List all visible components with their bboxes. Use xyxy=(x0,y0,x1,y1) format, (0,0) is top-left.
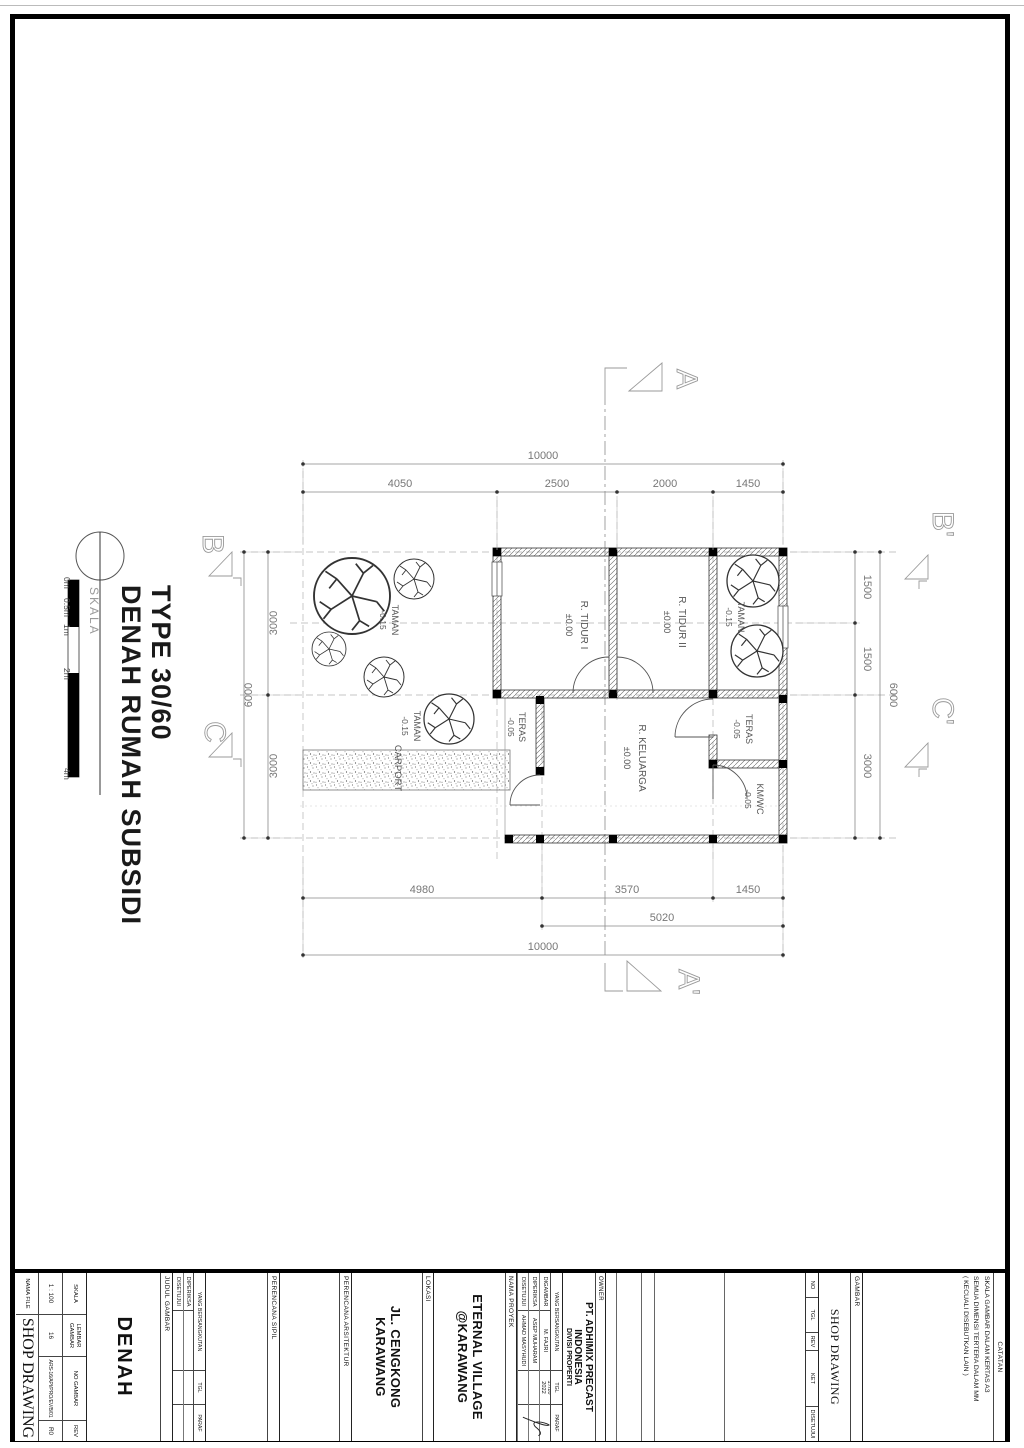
nama-proyek-cell: NAMA PROYEK ETERNAL VILLAGE @KARAWANG xyxy=(433,1273,516,1441)
meta-block: SKALA LEMBAR GAMBAR NO GAMBAR REV 1 : 10… xyxy=(15,1273,86,1441)
approval-name: ASEP MUHARAM xyxy=(529,1311,539,1371)
drawing-sheet: 10000 4050 2500 2000 1450 4980 3570 1450… xyxy=(0,0,1024,1448)
proyek-line1: ETERNAL VILLAGE xyxy=(470,1294,485,1420)
scale-tick-2: 2m xyxy=(62,668,72,680)
nama-proyek-label: NAMA PROYEK xyxy=(505,1273,516,1441)
approval2-role: DISETUJUI xyxy=(173,1273,183,1311)
approval-date: 17/10 2022 xyxy=(540,1371,550,1405)
section-letter-c: C xyxy=(198,721,231,743)
approval2-name xyxy=(184,1311,193,1371)
signature-scribble xyxy=(519,1409,552,1439)
dim-bottom-1: 4980 xyxy=(410,884,434,896)
dim-bottom-3: 1450 xyxy=(736,884,760,896)
scale-tick-0: 0m xyxy=(62,577,72,589)
approval-role: DIGAMBAR xyxy=(540,1273,550,1311)
scale-bar: 0m 0.5m 1m 2m 4m xyxy=(62,577,79,780)
lokasi-label: LOKASI xyxy=(422,1273,433,1441)
room-teras-kiri-level: -0.05 xyxy=(506,717,516,737)
dim-top-3: 2000 xyxy=(653,478,677,490)
meta-rev-value: R0 xyxy=(39,1421,62,1441)
perencana-sipil-label: PERENCANA SIPIL xyxy=(267,1273,279,1441)
dim-bottom-total: 10000 xyxy=(528,941,559,953)
rev-col-tgl: TGL xyxy=(806,1298,818,1333)
approval-name: M. FAJRI xyxy=(540,1311,550,1371)
perencana-arsitektur-cell: PERENCANA ARSITEKTUR xyxy=(279,1273,351,1441)
catatan-label: CATATAN xyxy=(993,1273,1005,1441)
approval2-block: YANG BERSANGKUTAN TGL PARAF DIPERIKSA DI… xyxy=(172,1273,205,1441)
revision-row-line xyxy=(654,1273,655,1441)
room-kmwc-level: -0.05 xyxy=(743,789,753,809)
approval2-row-disetujui: DISETUJUI xyxy=(173,1273,183,1441)
gambar-label: GAMBAR xyxy=(850,1273,862,1441)
judul-gambar-value: DENAH xyxy=(87,1273,160,1441)
drawing-title-line2: TYPE 30/60 xyxy=(146,585,176,741)
room-tidur2: R. TIDUR II xyxy=(676,596,687,647)
meta-header-row: SKALA LEMBAR GAMBAR NO GAMBAR REV xyxy=(62,1273,86,1441)
dim-left-1: 3000 xyxy=(268,611,280,635)
approval2-date xyxy=(184,1371,193,1405)
meta-namafile-row: NAMA FILE SHOP DRAWING xyxy=(16,1273,38,1441)
floor-plan-drawing: 10000 4050 2500 2000 1450 4980 3570 1450… xyxy=(0,0,1024,1269)
approval-role: DIPERIKSA xyxy=(529,1273,539,1311)
dim-top-1: 4050 xyxy=(388,478,412,490)
gambar-value: SHOP DRAWING xyxy=(819,1273,850,1441)
dimension-texts: 10000 4050 2500 2000 1450 4980 3570 1450… xyxy=(243,450,899,953)
rev-col-rev: REV xyxy=(806,1333,818,1351)
approval-block: YANG BERSANGKUTAN TGL PARAF DIGAMBAR M. … xyxy=(516,1273,562,1441)
approval2-paraf-header: PARAF xyxy=(194,1405,205,1441)
title-block-rotated: CATATAN SKALA GAMBAR DALAM KERTAS A3 SEM… xyxy=(15,1273,1005,1441)
perencana-sipil-cell: PERENCANA SIPIL xyxy=(205,1273,279,1441)
approval-paraf-header: PARAF xyxy=(551,1405,562,1441)
scale-tick-1: 1m xyxy=(62,624,72,636)
revision-header-row: NO TGL REV KET DISETUJUI xyxy=(805,1273,818,1441)
area-carport: CARPORT xyxy=(392,745,403,791)
area-taman-tengah-level: -0.15 xyxy=(400,716,410,736)
scale-tick-05: 0.5m xyxy=(62,598,72,617)
owner-cell: OWNER PT. ADHIMIX PRECAST INDONESIA DIVI… xyxy=(562,1273,605,1441)
catatan-note-2: SEMUA DIMENSI TERTERA DALAM MM xyxy=(970,1276,981,1438)
section-letter-b-prime: B' xyxy=(926,511,959,537)
area-taman-kanan: TAMAN xyxy=(736,602,746,633)
approval-date xyxy=(518,1371,528,1405)
rev-col-ket: KET xyxy=(806,1351,818,1407)
dim-bottom-2: 3570 xyxy=(615,884,639,896)
catatan-note-1: SKALA GAMBAR DALAM KERTAS A3 xyxy=(980,1276,991,1438)
dim-bottom-partial: 5020 xyxy=(650,912,674,924)
room-keluarga-level: ±0.00 xyxy=(622,747,632,769)
catatan-note-3: ( KECUALI DISEBUTKAN LAIN ) xyxy=(959,1276,970,1438)
dim-top-total: 10000 xyxy=(528,450,559,462)
lokasi-line1: JL. CENGKONG xyxy=(387,1306,402,1409)
section-letters: A A' B B' C C' xyxy=(196,369,959,995)
proyek-line2: @KARAWANG xyxy=(455,1311,470,1404)
approval-header: YANG BERSANGKUTAN xyxy=(551,1273,562,1371)
owner-line2: INDONESIA xyxy=(572,1329,583,1385)
grid-lines xyxy=(240,460,900,958)
dim-left-2: 3000 xyxy=(268,754,280,778)
section-markers xyxy=(209,363,928,991)
catatan-notes: SKALA GAMBAR DALAM KERTAS A3 SEMUA DIMEN… xyxy=(957,1273,993,1441)
area-taman-kiri: TAMAN xyxy=(390,605,400,636)
approval2-row-diperiksa: DIPERIKSA xyxy=(183,1273,193,1441)
meta-rev-header: REV xyxy=(63,1421,86,1441)
carport-paving xyxy=(303,750,510,790)
meta-skala-header: SKALA xyxy=(63,1273,86,1315)
meta-lembar-value: 16 xyxy=(39,1315,62,1357)
extension-lines xyxy=(240,468,884,958)
dim-right-3: 3000 xyxy=(861,754,873,778)
rev-col-no: NO xyxy=(806,1273,818,1298)
revision-body xyxy=(606,1273,805,1441)
approval-date xyxy=(529,1371,539,1405)
judul-gambar-cell: JUDUL GAMBAR DENAH xyxy=(86,1273,172,1441)
section-letter-c-prime: C' xyxy=(926,697,959,724)
revision-table: NO TGL REV KET DISETUJUI xyxy=(605,1273,818,1441)
nama-file-label: NAMA FILE xyxy=(16,1273,38,1315)
dim-top-2: 2500 xyxy=(545,478,569,490)
drawing-title: DENAH RUMAH SUBSIDI TYPE 30/60 SKALA xyxy=(76,532,176,925)
room-kmwc: KM/WC xyxy=(755,784,765,815)
gambar-cell: GAMBAR SHOP DRAWING xyxy=(818,1273,862,1441)
judul-gambar-label: JUDUL GAMBAR xyxy=(160,1273,172,1441)
section-letter-a-prime: A' xyxy=(672,969,705,995)
approval2-role: DIPERIKSA xyxy=(184,1273,193,1311)
lokasi-line2: KARAWANG xyxy=(372,1317,387,1397)
catatan-cell: CATATAN SKALA GAMBAR DALAM KERTAS A3 SEM… xyxy=(862,1273,1005,1441)
area-taman-kiri-level: -0.15 xyxy=(378,610,388,630)
owner-line1: PT. ADHIMIX PRECAST xyxy=(583,1302,594,1412)
meta-nogambar-value: ARS-16/API/PRO/EV/B/01 xyxy=(39,1357,62,1421)
section-letter-a: A xyxy=(670,369,703,389)
meta-nogambar-header: NO GAMBAR xyxy=(63,1357,86,1421)
revision-row-line xyxy=(616,1273,617,1441)
dim-right-total: 6000 xyxy=(887,683,899,707)
dim-right-1: 1500 xyxy=(861,575,873,599)
approval-name: AHMAD MASYHUDI xyxy=(518,1311,528,1371)
perencana-arsitektur-label: PERENCANA ARSITEKTUR xyxy=(339,1273,351,1441)
room-tidur1: R. TIDUR I xyxy=(578,601,589,650)
room-teras-kanan-level: -0.05 xyxy=(732,719,742,739)
approval-role: DISETUJUI xyxy=(518,1273,528,1311)
approval2-header: YANG BERSANGKUTAN xyxy=(194,1273,205,1371)
approval2-paraf-cell xyxy=(173,1405,183,1441)
owner-line3: DIVISI PROPERTI xyxy=(564,1328,572,1386)
area-taman-tengah: TAMAN xyxy=(412,711,422,742)
revision-row-line xyxy=(724,1273,725,1441)
dim-top-4: 1450 xyxy=(736,478,760,490)
owner-label: OWNER xyxy=(595,1273,605,1441)
revision-row-line xyxy=(641,1273,642,1441)
room-tidur1-level: ±0.00 xyxy=(564,614,574,636)
approval2-paraf-cell xyxy=(184,1405,193,1441)
room-teras-kanan: TERAS xyxy=(744,714,754,744)
room-tidur2-level: ±0.00 xyxy=(662,611,672,633)
title-block: CATATAN SKALA GAMBAR DALAM KERTAS A3 SEM… xyxy=(15,1269,1005,1441)
approval2-date xyxy=(173,1371,183,1405)
nama-file-value: SHOP DRAWING xyxy=(16,1315,38,1441)
section-letter-b: B xyxy=(196,534,229,554)
area-taman-kanan-level: -0.15 xyxy=(724,607,734,627)
approval2-header-row: YANG BERSANGKUTAN TGL PARAF xyxy=(193,1273,205,1441)
room-keluarga: R. KELUARGA xyxy=(636,724,647,792)
scale-tick-4: 4m xyxy=(62,768,72,780)
room-teras-kiri: TERAS xyxy=(517,712,527,742)
approval-tgl-header: TGL xyxy=(551,1371,562,1405)
approval2-tgl-header: TGL xyxy=(194,1371,205,1405)
approval2-name xyxy=(173,1311,183,1371)
skala-label: SKALA xyxy=(87,587,101,636)
meta-skala-value: 1 : 100 xyxy=(39,1273,62,1315)
lokasi-cell: LOKASI JL. CENGKONG KARAWANG xyxy=(351,1273,433,1441)
drawing-title-line1: DENAH RUMAH SUBSIDI xyxy=(116,585,146,925)
meta-lembar-header: LEMBAR GAMBAR xyxy=(63,1315,86,1357)
dim-right-2: 1500 xyxy=(861,647,873,671)
dim-left-total: 6000 xyxy=(243,683,255,707)
meta-value-row: 1 : 100 16 ARS-16/API/PRO/EV/B/01 R0 xyxy=(38,1273,62,1441)
rev-col-disetujui: DISETUJUI xyxy=(806,1407,818,1441)
